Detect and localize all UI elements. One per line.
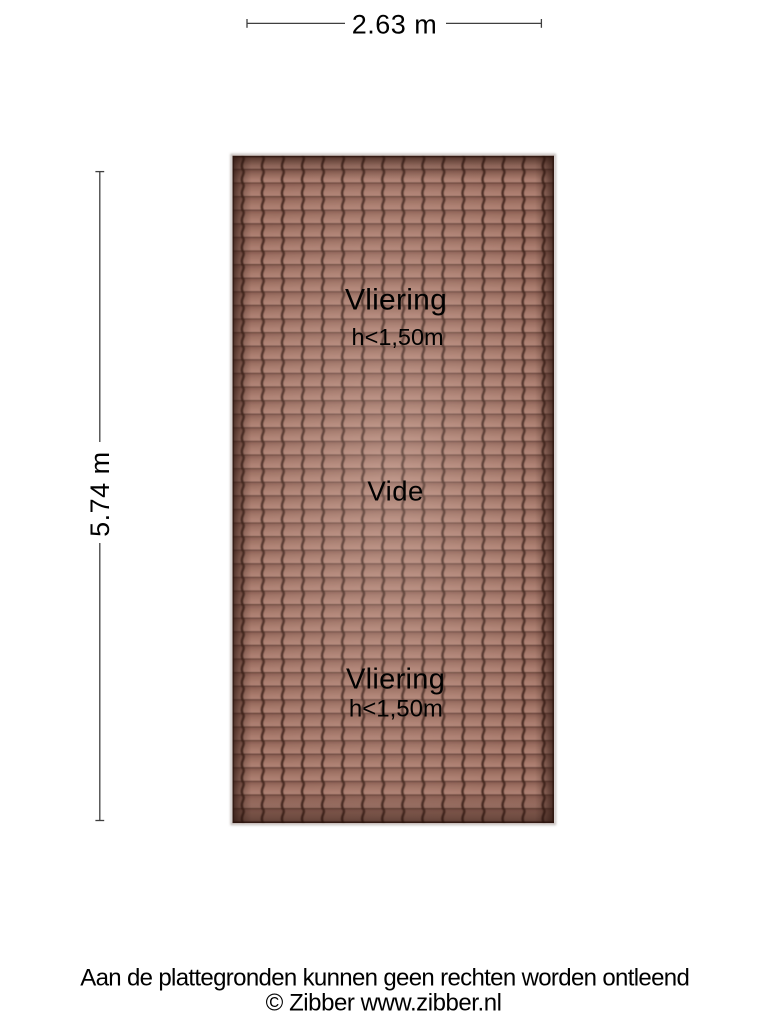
svg-text:Aan de plattegronden kunnen ge: Aan de plattegronden kunnen geen rechten…	[80, 965, 689, 992]
svg-text:© Zibber www.zibber.nl: © Zibber www.zibber.nl	[266, 990, 502, 1017]
svg-text:Vliering: Vliering	[346, 664, 445, 696]
svg-text:5.74 m: 5.74 m	[85, 451, 115, 537]
svg-text:2.63 m: 2.63 m	[352, 9, 438, 39]
svg-text:h<1,50m: h<1,50m	[352, 324, 444, 350]
svg-text:Vliering: Vliering	[345, 283, 447, 316]
svg-text:Vide: Vide	[367, 476, 424, 507]
svg-text:h<1,50m: h<1,50m	[349, 696, 443, 723]
